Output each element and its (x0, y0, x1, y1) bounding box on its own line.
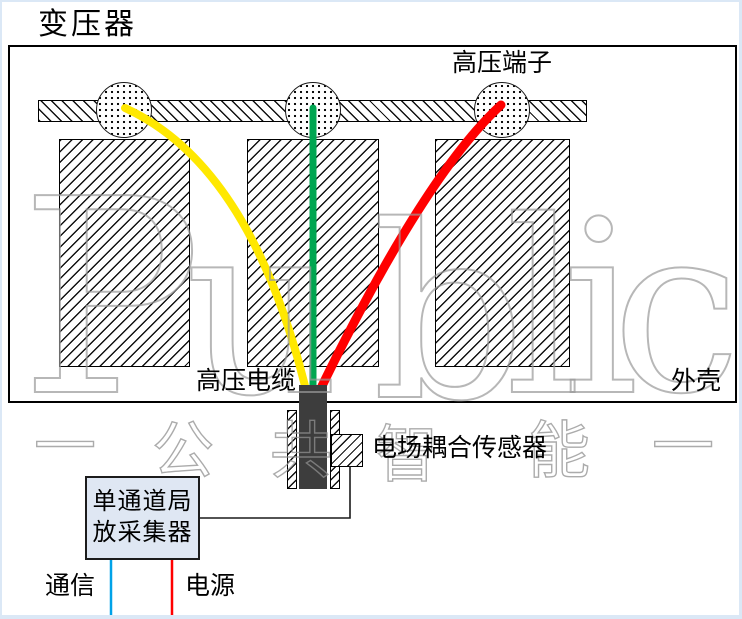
label-enclosure: 外壳 (671, 368, 721, 396)
field-coupler-block (331, 434, 363, 467)
page-background: 变压器 P u b l (0, 0, 742, 619)
pd-collector-label-line2: 放采集器 (93, 518, 193, 549)
transformer-title: 变压器 (38, 8, 137, 41)
pd-collector-label-line1: 单通道局 (93, 487, 193, 518)
label-hv-cable: 高压电缆 (196, 368, 296, 396)
hv-cable-red (322, 105, 501, 386)
label-comm: 通信 (45, 573, 95, 601)
diagram-canvas: 变压器 P u b l (2, 2, 739, 615)
sensor-electrode-left (287, 410, 297, 489)
pd-collector-box: 单通道局 放采集器 (85, 476, 200, 560)
cable-termination-body (299, 385, 327, 489)
hv-cable-yellow (125, 108, 305, 386)
label-field-coupling-sensor: 电场耦合传感器 (372, 435, 547, 463)
label-hv-terminal: 高压端子 (452, 50, 552, 78)
label-power: 电源 (185, 573, 235, 601)
